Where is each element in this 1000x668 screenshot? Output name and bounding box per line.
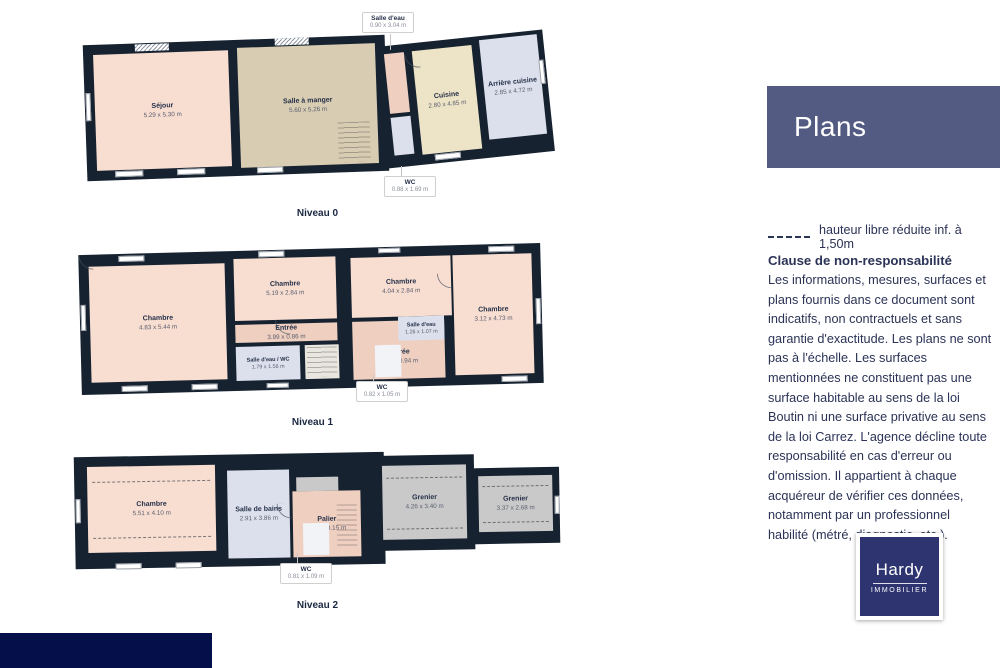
room-salle-deau-wc: Salle d'eau / WC 1.79 x 1.56 m bbox=[236, 345, 301, 381]
window-mark bbox=[81, 305, 87, 331]
room-arriere-cuisine: Arrière cuisine 2.85 x 4.72 m bbox=[479, 34, 547, 140]
logo-divider bbox=[873, 583, 927, 584]
room-cuisine: Cuisine 2.80 x 4.85 m bbox=[412, 45, 483, 155]
ceiling-height-dash bbox=[93, 536, 211, 539]
door-arc bbox=[78, 255, 93, 270]
room-dims: 4.26 x 3.40 m bbox=[406, 503, 444, 511]
room-dims: 1.26 x 1.07 m bbox=[405, 328, 438, 335]
door-arc bbox=[404, 53, 420, 69]
room-chambre-3: Chambre 4.04 x 2.84 m bbox=[350, 255, 452, 318]
ceiling-height-dash bbox=[482, 485, 549, 487]
room-grenier-2: Grenier 3.37 x 2.68 m bbox=[478, 475, 553, 532]
callout-room-dims: 0.90 x 3.04 m bbox=[369, 23, 407, 30]
floor-label-niveau-2: Niveau 2 bbox=[75, 600, 560, 611]
window-mark bbox=[267, 383, 289, 389]
disclaimer-body: Les informations, mesures, surfaces et p… bbox=[768, 271, 992, 545]
callout-room-name: WC bbox=[287, 566, 325, 574]
callout-wc-n1: WC 0.82 x 1.05 m bbox=[356, 381, 408, 402]
window-mark bbox=[378, 248, 400, 254]
room-name: Chambre bbox=[136, 501, 166, 510]
window-mark bbox=[258, 251, 284, 258]
room-dims: 2.91 x 3.86 m bbox=[240, 515, 278, 523]
agency-logo: Hardy IMMOBILIER bbox=[856, 533, 943, 620]
room-dims: 1.79 x 1.56 m bbox=[252, 363, 285, 370]
room-chambre-n2: Chambre 5.51 x 4.10 m bbox=[87, 465, 216, 553]
window-mark bbox=[435, 152, 461, 161]
agency-logo-inner: Hardy IMMOBILIER bbox=[860, 537, 939, 616]
window-mark bbox=[118, 255, 144, 262]
floor-plan-niveau-2: Chambre 5.51 x 4.10 m Salle de bains 2.9… bbox=[75, 445, 560, 610]
disclaimer: Clause de non-responsabilité Les informa… bbox=[768, 253, 992, 545]
floor-plan-niveau-0: Salle d'eau 0.90 x 3.04 m Séjour 5.29 x … bbox=[85, 12, 550, 217]
room-salle-deau-small: Salle d'eau 1.26 x 1.07 m bbox=[398, 316, 445, 341]
logo-tagline: IMMOBILIER bbox=[871, 587, 928, 594]
ceiling-height-dash bbox=[387, 527, 463, 529]
staircase bbox=[338, 121, 371, 162]
room-name: Grenier bbox=[412, 494, 437, 502]
room-name: Chambre bbox=[478, 306, 509, 315]
window-mark bbox=[488, 246, 514, 253]
callout-room-name: Salle d'eau bbox=[369, 15, 407, 23]
room-chambre-1: Chambre 4.83 x 5.44 m bbox=[89, 263, 228, 383]
room-dims: 5.51 x 4.10 m bbox=[133, 510, 171, 518]
window-mark bbox=[554, 496, 559, 514]
ceiling-height-dash bbox=[92, 480, 210, 483]
room-dims: 5.29 x 5.30 m bbox=[144, 111, 182, 119]
plan1-body: Chambre 4.83 x 5.44 m Chambre 5.19 x 2.8… bbox=[78, 243, 544, 395]
room-dims: 3.12 x 4.73 m bbox=[474, 315, 512, 323]
staircase bbox=[307, 346, 338, 377]
staircase bbox=[337, 504, 358, 548]
panel-header: Plans bbox=[767, 86, 1000, 168]
room-wc-cell bbox=[375, 345, 402, 378]
callout-wc-n2: WC 0.81 x 1.09 m bbox=[280, 563, 332, 584]
room-dims: 3.37 x 2.68 m bbox=[497, 504, 535, 512]
room-grenier-1: Grenier 4.26 x 3.40 m bbox=[382, 464, 467, 539]
room-name: Grenier bbox=[503, 495, 528, 503]
window-mark bbox=[177, 168, 205, 175]
room-name: Salle d'eau bbox=[407, 321, 436, 328]
window-mark bbox=[502, 375, 528, 382]
room-sejour: Séjour 5.29 x 5.30 m bbox=[93, 50, 232, 171]
insulation-mark bbox=[275, 37, 309, 45]
insulation-mark bbox=[135, 43, 169, 51]
room-name: Salle de bains bbox=[235, 506, 282, 515]
callout-room-name: WC bbox=[391, 179, 429, 187]
window-mark bbox=[75, 499, 80, 523]
window-mark bbox=[122, 385, 148, 392]
callout-room-name: WC bbox=[363, 384, 401, 392]
ceiling-height-dash bbox=[386, 476, 462, 478]
room-dims: 4.83 x 5.44 m bbox=[139, 324, 177, 332]
page-title: Plans bbox=[794, 111, 867, 143]
footer-bar bbox=[0, 633, 212, 668]
plan0-left-wing: Séjour 5.29 x 5.30 m Salle à manger 5.60… bbox=[83, 35, 390, 181]
landing-cap bbox=[296, 477, 338, 492]
window-mark bbox=[192, 383, 218, 390]
room-name: Salle d'eau / WC bbox=[246, 356, 289, 363]
room-wc-cell bbox=[391, 116, 415, 156]
room-dims: 5.60 x 5.26 m bbox=[289, 106, 327, 114]
legend-text: hauteur libre réduite inf. à 1,50m bbox=[819, 223, 1000, 251]
page: Salle d'eau 0.90 x 3.04 m Séjour 5.29 x … bbox=[0, 0, 1000, 668]
room-dims: 5.19 x 2.84 m bbox=[266, 289, 304, 297]
window-mark bbox=[257, 166, 283, 173]
window-mark bbox=[85, 93, 91, 121]
disclaimer-title: Clause de non-responsabilité bbox=[768, 253, 992, 268]
window-mark bbox=[116, 563, 142, 569]
logo-brand-name: Hardy bbox=[876, 560, 924, 580]
callout-leader-line bbox=[390, 34, 391, 50]
room-chambre-4: Chambre 3.12 x 4.73 m bbox=[452, 253, 534, 375]
callout-room-dims: 0.81 x 1.09 m bbox=[287, 574, 325, 581]
window-mark bbox=[115, 170, 143, 177]
legend-reduced-height: hauteur libre réduite inf. à 1,50m bbox=[768, 223, 1000, 251]
room-dims: 4.04 x 2.84 m bbox=[382, 287, 420, 295]
plan0-right-wing: Cuisine 2.80 x 4.85 m Arrière cuisine 2.… bbox=[375, 30, 555, 169]
floor-plan-niveau-1: Chambre 4.83 x 5.44 m Chambre 5.19 x 2.8… bbox=[80, 243, 545, 428]
callout-wc-n0: WC 0.88 x 1.69 m bbox=[384, 176, 436, 197]
room-chambre-2: Chambre 5.19 x 2.84 m bbox=[233, 256, 337, 321]
room-name: Chambre bbox=[143, 315, 174, 324]
callout-salle-deau-n0: Salle d'eau 0.90 x 3.04 m bbox=[362, 12, 414, 33]
plan2-body: Chambre 5.51 x 4.10 m Salle de bains 2.9… bbox=[74, 441, 562, 614]
dashed-line-icon bbox=[768, 236, 810, 238]
window-mark bbox=[536, 298, 542, 324]
room-wc-cell bbox=[303, 523, 330, 555]
window-mark bbox=[176, 562, 202, 568]
room-name: Chambre bbox=[386, 278, 417, 287]
floor-label-niveau-0: Niveau 0 bbox=[85, 208, 550, 219]
room-name: Séjour bbox=[151, 102, 173, 111]
callout-room-dims: 0.82 x 1.05 m bbox=[363, 392, 401, 399]
floor-label-niveau-1: Niveau 1 bbox=[80, 417, 545, 428]
callout-room-dims: 0.88 x 1.69 m bbox=[391, 187, 429, 194]
room-name: Chambre bbox=[270, 280, 301, 289]
ceiling-height-dash bbox=[483, 521, 550, 523]
